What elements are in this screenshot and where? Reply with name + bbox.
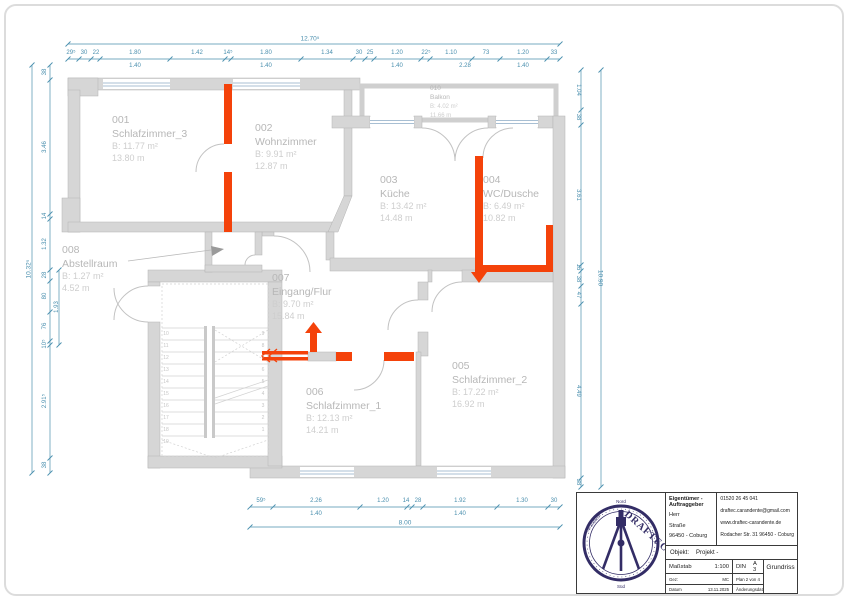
logo-south-label: Süd bbox=[617, 584, 626, 589]
dim-label: 14 bbox=[403, 498, 410, 504]
stair-step-number: 9 bbox=[262, 331, 265, 337]
street-address: Rodacher Str. 31 96450 - Coburg bbox=[720, 532, 794, 538]
dim-label: 1.40 bbox=[310, 511, 322, 517]
stair-step-number: 19 bbox=[163, 439, 169, 445]
dim-label: 28 bbox=[42, 272, 48, 279]
dim-label: 4.49 bbox=[575, 385, 581, 397]
objekt-cell: Objekt: Projekt - bbox=[666, 546, 797, 560]
dim-label: 47 bbox=[575, 292, 581, 299]
stair-step-number: 18 bbox=[163, 427, 169, 433]
dim-label: 8.00 bbox=[399, 520, 412, 527]
room-perimeter: 4.52 m bbox=[62, 283, 117, 295]
email-address: draftec.carandente@gmail.com bbox=[720, 508, 794, 514]
dim-label: 30 bbox=[356, 50, 363, 56]
dim-label: 1.20 bbox=[391, 50, 403, 56]
owner-header: Eigentümer - Auftraggeber bbox=[669, 496, 713, 508]
drawing-name: Grundriss bbox=[766, 564, 794, 571]
change-date-cell: Änderungsdatum bbox=[733, 585, 763, 593]
room-perimeter: 10.82 m bbox=[483, 213, 539, 225]
room-area: B: 9.70 m² bbox=[272, 299, 332, 311]
dim-label: 30 bbox=[81, 50, 88, 56]
stair-step-number: 15 bbox=[163, 391, 169, 397]
stair-step-number: 11 bbox=[163, 343, 168, 349]
stair-step-number: 13 bbox=[163, 367, 169, 373]
dim-label: 33 bbox=[551, 50, 558, 56]
din-value: A 3 bbox=[753, 561, 760, 573]
room-name: Schlafzimmer_2 bbox=[452, 374, 527, 388]
room-name: Wohnzimmer bbox=[255, 136, 317, 150]
stair-step-number: 7 bbox=[262, 355, 265, 361]
room-number: 007 bbox=[272, 272, 332, 286]
dim-label: 38 bbox=[575, 276, 581, 283]
room-area: B: 11.77 m² bbox=[112, 141, 187, 153]
dim-label: 2.28 bbox=[459, 63, 471, 69]
dim-label: 29⁵ bbox=[66, 50, 75, 56]
company-logo: DRAFTEC Carandente Nord Süd bbox=[577, 493, 666, 593]
dim-label: 3.61 bbox=[575, 189, 581, 201]
owner-line: Straße bbox=[669, 523, 713, 529]
room-perimeter: 12.87 m bbox=[255, 161, 317, 173]
gez-label: Gez: bbox=[669, 577, 678, 582]
room-number: 002 bbox=[255, 122, 317, 136]
din-label: DIN bbox=[736, 564, 746, 570]
drawing-name-cell: Grundriss bbox=[764, 560, 797, 593]
title-block-table: Eigentümer - Auftraggeber Herr Straße 96… bbox=[666, 493, 797, 593]
room-name: Schlafzimmer_1 bbox=[306, 400, 381, 414]
room-number: 003 bbox=[380, 174, 427, 188]
dim-label: 14 bbox=[42, 213, 48, 220]
room-area: B: 17.22 m² bbox=[452, 387, 527, 399]
contact-cell: 01520 26 45 041 draftec.carandente@gmail… bbox=[717, 493, 797, 545]
room-area: B: 6.49 m² bbox=[483, 201, 539, 213]
datum-cell: Datum 13.11.2025 bbox=[666, 585, 733, 593]
owner-line: Herr bbox=[669, 512, 713, 518]
stair-step-number: 10 bbox=[163, 331, 169, 337]
staircase bbox=[162, 284, 268, 458]
dim-label: 1.80 bbox=[260, 50, 272, 56]
room-number: 005 bbox=[452, 360, 527, 374]
dim-label: 1.40 bbox=[454, 511, 466, 517]
dim-label: 1.40 bbox=[129, 63, 141, 69]
wall-arrow-up bbox=[305, 322, 322, 333]
room-label-007: 007 Eingang/Flur B: 9.70 m² 15.84 m bbox=[272, 272, 332, 323]
room-area: B: 13.42 m² bbox=[380, 201, 427, 213]
dim-label: 15 bbox=[575, 264, 581, 271]
room-perimeter: 13.80 m bbox=[112, 153, 187, 165]
logo-brand-text: DRAFTEC bbox=[622, 509, 665, 554]
room-number: 004 bbox=[483, 174, 539, 188]
stair-step-number: 12 bbox=[163, 355, 169, 361]
stair-step-number: 4 bbox=[262, 391, 265, 397]
room-label-004: 004 WC/Dusche B: 6.49 m² 10.82 m bbox=[483, 174, 539, 225]
stair-step-number: 3 bbox=[262, 403, 265, 409]
stair-step-number: 1 bbox=[262, 427, 265, 433]
room-label-008: 008 Abstellraum B: 1.27 m² 4.52 m bbox=[62, 244, 117, 295]
dim-label: 28 bbox=[415, 498, 422, 504]
room-number: 006 bbox=[306, 386, 381, 400]
room-area: B: 1.27 m² bbox=[62, 271, 117, 283]
plan-info: Plan 2 von 4 bbox=[736, 577, 760, 582]
logo-north-label: Nord bbox=[616, 499, 626, 504]
room-label-010-balkon: 010 Balkon B: 4.02 m² 11.66 m bbox=[430, 84, 458, 120]
dim-label: 59⁵ bbox=[256, 498, 265, 504]
dim-label: 22⁵ bbox=[421, 50, 430, 56]
stair-step-number: 14 bbox=[163, 379, 169, 385]
room-number: 001 bbox=[112, 114, 187, 128]
dim-label: 2.91⁵ bbox=[42, 394, 48, 408]
dim-label: 30 bbox=[551, 498, 558, 504]
room-number: 010 bbox=[430, 84, 458, 93]
massstab-cell: Maßstab 1:100 bbox=[666, 560, 733, 573]
stair-step-number: 6 bbox=[262, 367, 265, 373]
dim-label: 2.26 bbox=[310, 498, 322, 504]
dim-label: 1.40 bbox=[517, 63, 529, 69]
website-url: www.draftec-carandente.de bbox=[720, 520, 794, 526]
dim-label: 10⁵ bbox=[42, 339, 48, 348]
objekt-label: Objekt: bbox=[670, 550, 689, 556]
room-label-003: 003 Küche B: 13.42 m² 14.48 m bbox=[380, 174, 427, 225]
room-perimeter: 15.84 m bbox=[272, 311, 332, 323]
stair-step-number: 17 bbox=[163, 415, 169, 421]
room-number: 008 bbox=[62, 244, 117, 258]
room-name: Eingang/Flur bbox=[272, 286, 332, 300]
dim-label: 38 bbox=[42, 462, 48, 469]
dim-label: 14⁵ bbox=[223, 50, 232, 56]
room-perimeter: 11.66 m bbox=[430, 112, 458, 121]
stair-step-number: 16 bbox=[163, 403, 169, 409]
dim-label: 1.93 bbox=[54, 301, 60, 313]
room-name: Schlafzimmer_3 bbox=[112, 128, 187, 142]
owner-cell: Eigentümer - Auftraggeber Herr Straße 96… bbox=[666, 493, 717, 545]
room-label-005: 005 Schlafzimmer_2 B: 17.22 m² 16.92 m bbox=[452, 360, 527, 411]
massstab-value: 1:100 bbox=[714, 564, 729, 570]
dim-label: 1.20 bbox=[377, 498, 389, 504]
dim-label: 38 bbox=[575, 114, 581, 121]
dim-label: 76 bbox=[42, 323, 48, 330]
room-name: WC/Dusche bbox=[483, 188, 539, 202]
dim-label: 80 bbox=[42, 293, 48, 300]
datum-label: Datum bbox=[669, 587, 682, 592]
gez-value: MC bbox=[722, 577, 729, 582]
dim-label: 73 bbox=[483, 50, 490, 56]
dim-label: 12.70⁵ bbox=[301, 36, 320, 43]
dim-label: 1.40 bbox=[260, 63, 272, 69]
plan-number-cell: Plan 2 von 4 bbox=[733, 574, 763, 584]
title-block: DRAFTEC Carandente Nord Süd Eigentümer -… bbox=[576, 492, 798, 594]
dim-label: 3.46 bbox=[42, 141, 48, 153]
room-area: B: 4.02 m² bbox=[430, 103, 458, 112]
dim-label: 22 bbox=[93, 50, 100, 56]
room-area: B: 12.13 m² bbox=[306, 413, 381, 425]
din-cell: DIN A 3 bbox=[733, 560, 763, 573]
room-label-001: 001 Schlafzimmer_3 B: 11.77 m² 13.80 m bbox=[112, 114, 187, 165]
dim-label: 38 bbox=[575, 479, 581, 486]
room-area: B: 9.91 m² bbox=[255, 149, 317, 161]
phone-number: 01520 26 45 041 bbox=[720, 496, 794, 502]
dim-label: 10.32⁵ bbox=[26, 260, 33, 279]
stair-step-number: 2 bbox=[262, 415, 265, 421]
room-name: Küche bbox=[380, 188, 427, 202]
dim-label: 1.34 bbox=[321, 50, 333, 56]
dim-label: 1.92 bbox=[454, 498, 466, 504]
massstab-label: Maßstab bbox=[669, 564, 692, 570]
dim-label: 1.10 bbox=[445, 50, 457, 56]
room-perimeter: 14.48 m bbox=[380, 213, 427, 225]
room-name: Abstellraum bbox=[62, 258, 117, 272]
dim-label: 1.40 bbox=[391, 63, 403, 69]
dim-label: 1.42 bbox=[191, 50, 203, 56]
stair-step-number: 8 bbox=[262, 343, 265, 349]
room-name: Balkon bbox=[430, 93, 458, 102]
dim-label: 1.32 bbox=[42, 238, 48, 250]
dim-label: 1.04 bbox=[575, 84, 581, 96]
compass-logo-icon: DRAFTEC Carandente Nord Süd bbox=[577, 493, 665, 591]
room-perimeter: 16.92 m bbox=[452, 399, 527, 411]
dim-label: 1.80 bbox=[129, 50, 141, 56]
dim-label: 25 bbox=[367, 50, 374, 56]
stair-step-number: 5 bbox=[262, 379, 265, 385]
dim-label: 1.30 bbox=[516, 498, 528, 504]
dim-label: 38 bbox=[42, 69, 48, 76]
room-perimeter: 14.21 m bbox=[306, 425, 381, 437]
leader-arrowhead bbox=[211, 246, 224, 256]
gez-cell: Gez: MC bbox=[666, 574, 733, 584]
objekt-value: Projekt - bbox=[696, 550, 718, 556]
change-date-label: Änderungsdatum bbox=[736, 587, 763, 592]
room-label-006: 006 Schlafzimmer_1 B: 12.13 m² 14.21 m bbox=[306, 386, 381, 437]
room-label-002: 002 Wohnzimmer B: 9.91 m² 12.87 m bbox=[255, 122, 317, 173]
drawing-page: 001 Schlafzimmer_3 B: 11.77 m² 13.80 m 0… bbox=[0, 0, 848, 600]
owner-line: 96450 - Coburg bbox=[669, 533, 713, 539]
dim-label: 1.20 bbox=[517, 50, 529, 56]
dim-label: 10.90 bbox=[597, 270, 604, 286]
datum-value: 13.11.2025 bbox=[708, 587, 729, 592]
